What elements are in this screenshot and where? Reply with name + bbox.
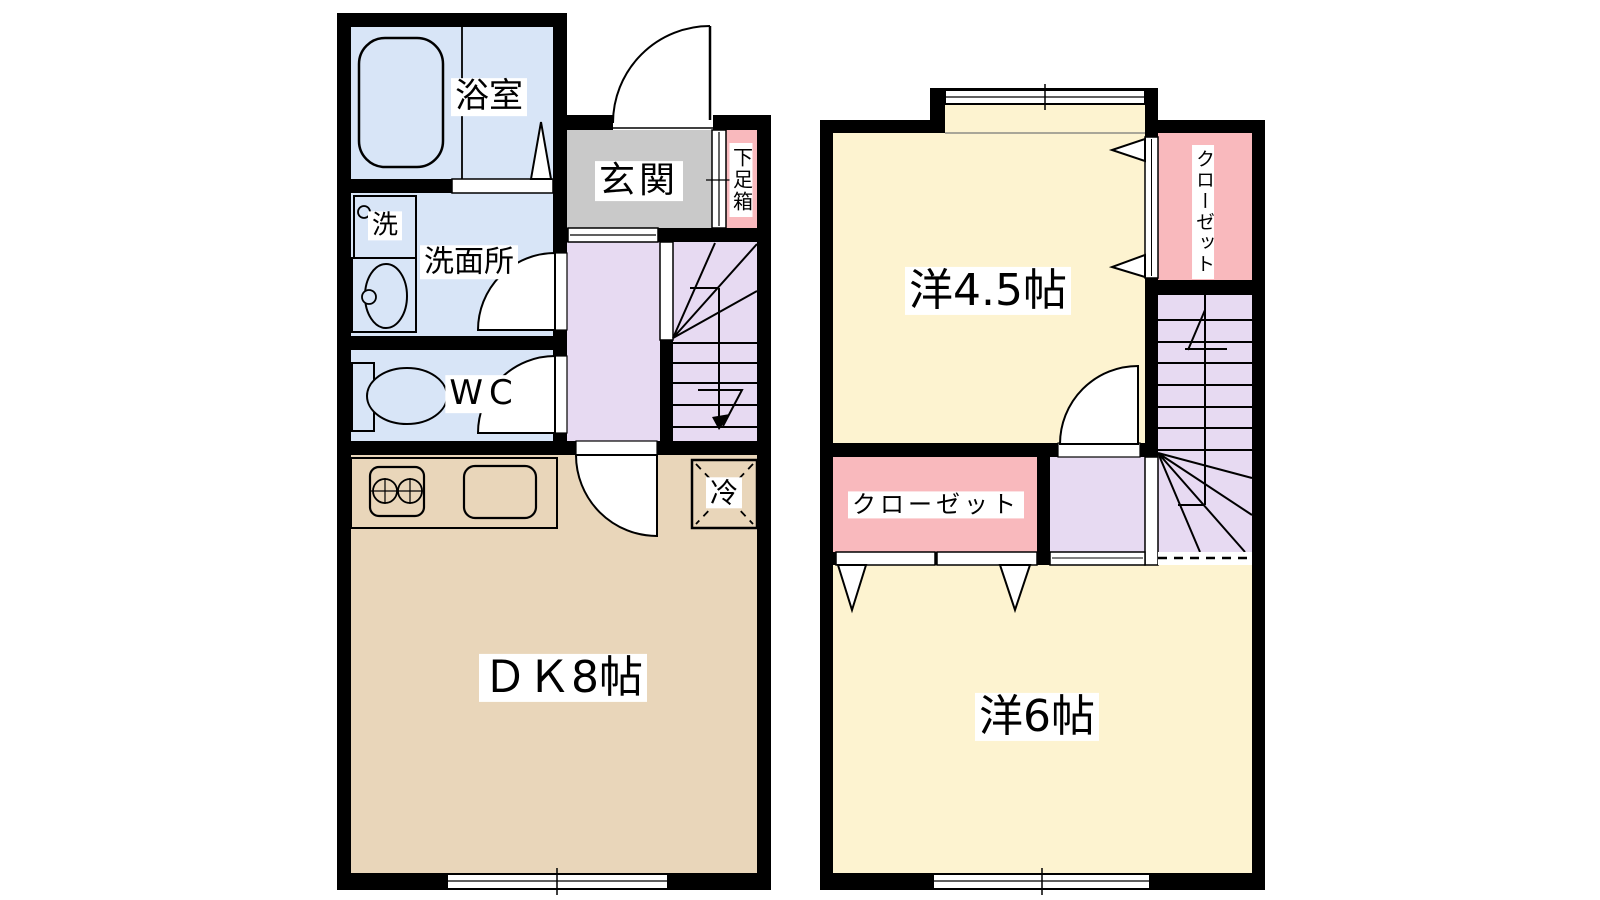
entrance-door	[613, 26, 713, 130]
label-refrigerator: 冷	[706, 477, 742, 508]
room-stairs-1f	[673, 242, 757, 441]
room-hall-2f	[1050, 457, 1145, 552]
entrance-hall-sliding-door	[568, 228, 658, 242]
label-washroom: 洗面所	[420, 245, 518, 279]
label-bathroom: 浴室	[451, 78, 527, 116]
kitchen-counter	[351, 458, 557, 528]
label-closet-lower: クローゼット	[848, 491, 1024, 518]
floorplan-canvas: 浴室 洗 洗面所 WC 玄関 下足箱 冷 ＤＫ8帖 洋4.5帖 クローゼット ク…	[0, 0, 1600, 900]
label-western-room-45: 洋4.5帖	[905, 267, 1071, 315]
label-western-room-6: 洋6帖	[975, 693, 1099, 741]
label-closet-upper: クローゼット	[1192, 145, 1214, 279]
label-laundry: 洗	[368, 211, 402, 240]
room-hall-1f	[567, 242, 660, 441]
label-entrance: 玄関	[595, 161, 683, 201]
label-dining-kitchen: ＤＫ8帖	[479, 654, 647, 702]
floorplan-drawing	[0, 0, 1600, 900]
floor1-plan	[337, 13, 771, 895]
label-shoebox: 下足箱	[730, 143, 753, 217]
hall-2f-sliding-door	[1050, 552, 1145, 565]
label-wc: WC	[445, 375, 522, 413]
